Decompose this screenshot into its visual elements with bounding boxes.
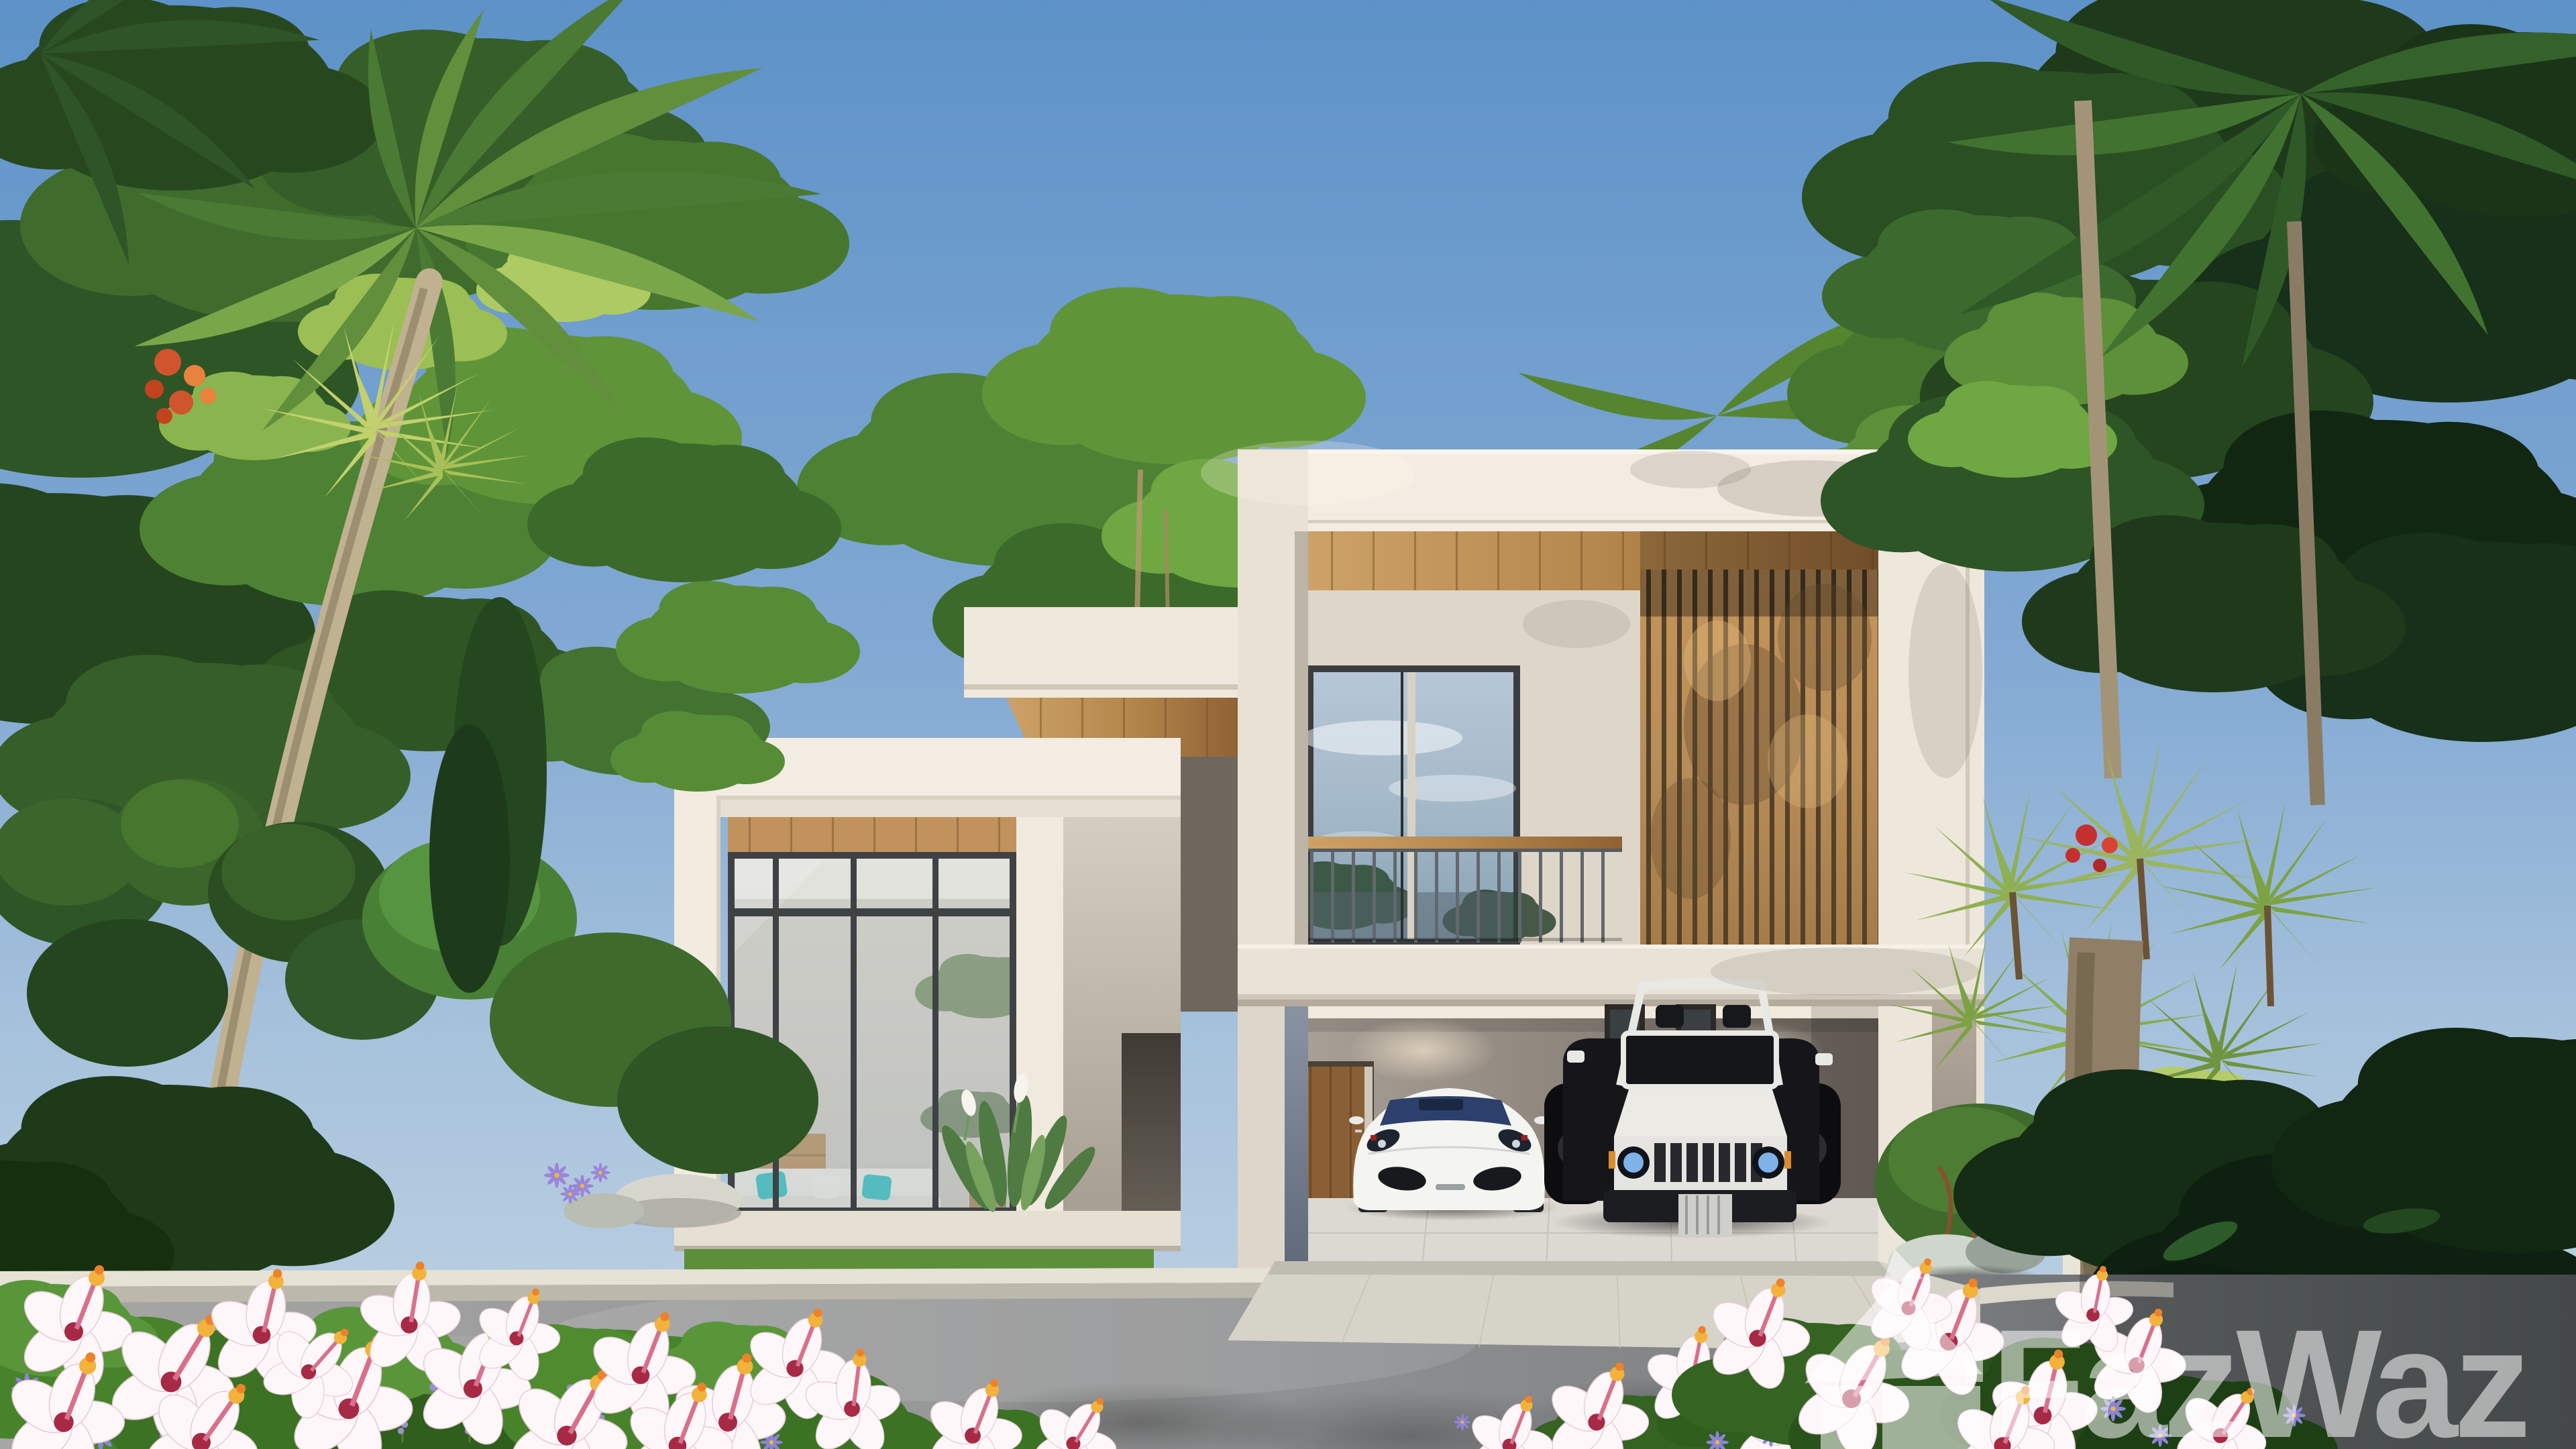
timber-slat-screen [1640,570,1878,945]
villa-rendering: FazWaz [0,0,2576,1449]
car-mirror [1349,1116,1364,1124]
scene-canvas: FazWaz [0,0,2576,1449]
car-center-grille [1436,1184,1465,1190]
suv-seat [1723,1005,1751,1028]
corner-glazing [728,852,1055,1216]
suv-hood [1614,1089,1787,1136]
sun-dapple [1768,714,1848,808]
rear-wing-fascia [964,607,1241,698]
cloud-reflection [1301,720,1462,755]
railing-timber-cap [1307,837,1622,849]
pillar-inner-face [1285,1006,1308,1281]
suv-windshield [1623,1033,1776,1087]
watermark-brand-text: FazWaz [1991,1297,2527,1449]
apron-shadow [1268,1261,1892,1276]
balcony-railing [1307,837,1622,943]
suv-grille-slots [1654,1143,1762,1182]
wing-groove [716,796,1181,800]
car-roof-inset [1419,1099,1463,1110]
leaf-shadow [1778,584,1872,691]
sunlight-patch [1201,441,1415,505]
railing-bars [1307,850,1622,943]
carport-ceiling [1308,1006,1878,1018]
suv-mirror [1815,1053,1833,1065]
leaf-shadow [1650,778,1731,899]
car-marker-light [1371,1135,1377,1140]
suv-marker [1609,1151,1615,1169]
car-marker-light [1521,1135,1527,1140]
fascia-groove [964,684,1241,690]
door-handle [1355,1130,1362,1132]
left-wing [674,738,1181,1277]
sun-dapple [1684,621,1751,701]
suv-mirror [1567,1051,1585,1063]
suv-marker [1784,1151,1791,1169]
plinth [674,1211,1181,1250]
suv-seat [1656,1005,1684,1028]
